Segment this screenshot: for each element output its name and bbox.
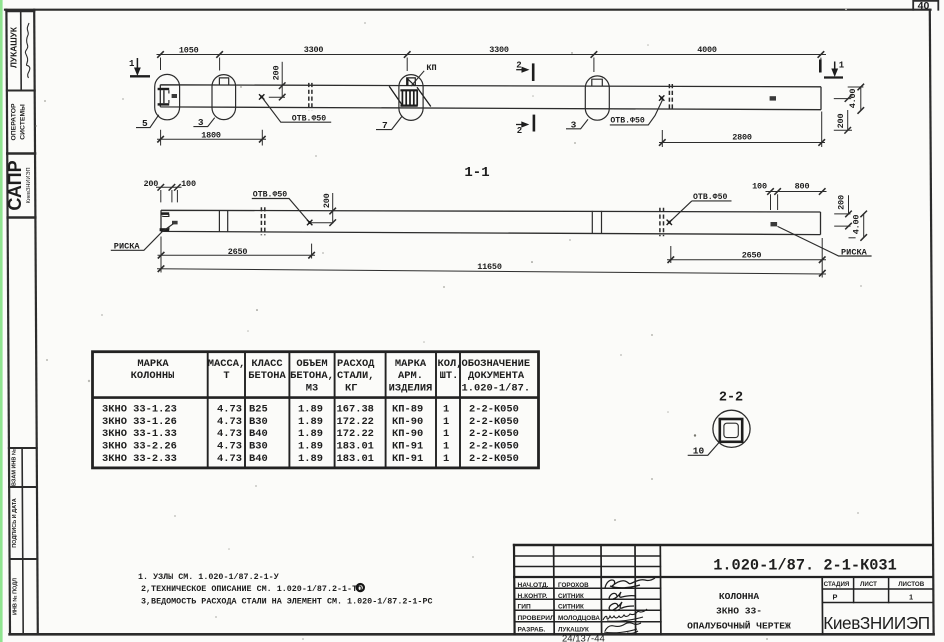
svg-text:КП: КП — [426, 63, 436, 73]
svg-text:СИСТЕМЫ: СИСТЕМЫ — [20, 104, 27, 140]
svg-text:М3: М3 — [306, 383, 318, 395]
svg-text:ГИП: ГИП — [518, 604, 531, 611]
svg-text:2-2-К050: 2-2-К050 — [469, 453, 519, 465]
svg-text:1: 1 — [443, 428, 449, 440]
svg-text:В30: В30 — [249, 441, 268, 453]
svg-text:2-2-К050: 2-2-К050 — [469, 404, 519, 416]
svg-text:1: 1 — [909, 593, 913, 602]
svg-text:1: 1 — [443, 453, 449, 465]
svg-text:РИСКА: РИСКА — [841, 248, 868, 258]
svg-text:2800: 2800 — [732, 133, 752, 143]
svg-text:БЕТОНА,: БЕТОНА, — [290, 370, 334, 382]
svg-text:КОЛ,: КОЛ, — [438, 358, 463, 370]
svg-text:1: 1 — [443, 416, 449, 428]
svg-text:4.73: 4.73 — [217, 404, 242, 416]
svg-text:2-2: 2-2 — [719, 391, 743, 406]
svg-text:В40: В40 — [249, 428, 268, 440]
svg-text:КП-90: КП-90 — [392, 416, 423, 428]
svg-text:3КНО 33-: 3КНО 33- — [716, 606, 762, 617]
svg-text:4000: 4000 — [697, 45, 717, 55]
svg-text:10: 10 — [693, 446, 705, 457]
svg-text:1.020-1/87. 2-1-К031: 1.020-1/87. 2-1-К031 — [713, 557, 897, 575]
svg-text:1050: 1050 — [179, 45, 199, 55]
svg-text:МОЛОДЦОВА: МОЛОДЦОВА — [558, 615, 600, 622]
svg-text:ОБОЗНАЧЕНИЕ: ОБОЗНАЧЕНИЕ — [462, 358, 531, 370]
svg-text:3КНО 33-1.23: 3КНО 33-1.23 — [102, 404, 177, 416]
svg-text:1800: 1800 — [201, 131, 221, 141]
svg-text:1.89: 1.89 — [298, 404, 323, 416]
svg-text:1: 1 — [443, 441, 449, 453]
svg-text:1.89: 1.89 — [298, 416, 323, 428]
svg-text:СТАЛИ,: СТАЛИ, — [337, 370, 374, 382]
svg-text:В40: В40 — [249, 453, 268, 465]
svg-text:НАЧ.ОТД.: НАЧ.ОТД. — [518, 582, 549, 589]
svg-text:2-2-К050: 2-2-К050 — [469, 416, 519, 428]
svg-text:ШТ.: ШТ. — [440, 370, 459, 382]
svg-text:200: 200 — [837, 195, 847, 210]
svg-text:1: 1 — [129, 59, 135, 69]
svg-text:КОЛОННА: КОЛОННА — [719, 591, 760, 602]
svg-text:3300: 3300 — [489, 45, 509, 55]
svg-text:11650: 11650 — [477, 262, 502, 272]
svg-text:1-1: 1-1 — [464, 165, 489, 181]
svg-text:ПОДПИСЬ И ДАТА: ПОДПИСЬ И ДАТА — [12, 498, 18, 548]
svg-text:172.22: 172.22 — [337, 428, 374, 440]
svg-text:ГОРОХОВ: ГОРОХОВ — [558, 582, 589, 589]
svg-text:200: 200 — [836, 114, 846, 129]
svg-text:3300: 3300 — [304, 45, 324, 55]
svg-text:3КНО 33-1.33: 3КНО 33-1.33 — [102, 428, 177, 440]
svg-text:КГ: КГ — [345, 383, 357, 395]
svg-text:ПРОВЕРИЛ: ПРОВЕРИЛ — [518, 615, 555, 622]
svg-text:1: 1 — [443, 404, 449, 416]
svg-text:800: 800 — [795, 181, 810, 191]
svg-text:4.73: 4.73 — [217, 428, 242, 440]
svg-text:183.01: 183.01 — [337, 453, 374, 465]
svg-text:100: 100 — [181, 179, 196, 189]
svg-text:4.73: 4.73 — [217, 441, 242, 453]
svg-text:200: 200 — [272, 66, 282, 81]
svg-text:ЛИСТ: ЛИСТ — [860, 581, 877, 588]
svg-text:КП-89: КП-89 — [392, 404, 423, 416]
svg-text:МАРКА: МАРКА — [395, 358, 427, 370]
svg-text:1. УЗЛЫ СМ. 1.020-1/87.2-1-У: 1. УЗЛЫ СМ. 1.020-1/87.2-1-У — [138, 572, 279, 582]
svg-text:КиевЗНИИЭП: КиевЗНИИЭП — [26, 168, 32, 204]
svg-text:ИНВ № ПОДЛ: ИНВ № ПОДЛ — [12, 578, 18, 615]
svg-text:ОТВ.Ф50: ОТВ.Ф50 — [292, 114, 326, 123]
svg-text:1.89: 1.89 — [298, 453, 323, 465]
svg-text:4.73: 4.73 — [217, 416, 242, 428]
svg-text:ИЗДЕЛИЯ: ИЗДЕЛИЯ — [389, 383, 433, 395]
svg-text:2650: 2650 — [742, 250, 762, 260]
svg-text:1: 1 — [839, 61, 845, 71]
svg-text:3КНО 33-2.26: 3КНО 33-2.26 — [102, 441, 177, 453]
svg-text:ОБЪЕМ: ОБЪЕМ — [296, 358, 327, 370]
svg-text:4.73: 4.73 — [217, 453, 242, 465]
svg-text:ВЗАМ ИНВ №: ВЗАМ ИНВ № — [12, 449, 18, 486]
svg-text:ЛУКАШУК: ЛУКАШУК — [8, 26, 18, 68]
svg-text:1.89: 1.89 — [298, 428, 323, 440]
svg-text:3КНО 33-1.26: 3КНО 33-1.26 — [102, 416, 177, 428]
svg-text:АРМ.: АРМ. — [398, 370, 423, 382]
svg-text:КП-91: КП-91 — [392, 441, 423, 453]
svg-text:3,ВЕДОМОСТЬ РАСХОДА СТАЛИ НА Э: 3,ВЕДОМОСТЬ РАСХОДА СТАЛИ НА ЭЛЕМЕНТ СМ.… — [141, 596, 433, 606]
svg-text:СТАДИЯ: СТАДИЯ — [824, 581, 850, 588]
svg-text:40: 40 — [918, 0, 930, 12]
svg-text:200: 200 — [322, 193, 332, 208]
svg-text:КЛАСС: КЛАСС — [251, 358, 282, 370]
svg-text:РАЗРАБ.: РАЗРАБ. — [518, 627, 546, 634]
svg-text:200: 200 — [143, 179, 158, 189]
svg-text:100: 100 — [752, 181, 767, 191]
svg-text:Т: Т — [223, 370, 229, 382]
svg-text:3КНО 33-2.33: 3КНО 33-2.33 — [102, 453, 177, 465]
svg-text:МАРКА: МАРКА — [137, 358, 169, 370]
svg-text:ДОКУМЕНТА: ДОКУМЕНТА — [468, 370, 525, 382]
svg-text:ОТВ.Ф50: ОТВ.Ф50 — [610, 117, 644, 126]
svg-text:КиевЗНИИЭП: КиевЗНИИЭП — [823, 613, 930, 633]
svg-text:183.01: 183.01 — [337, 441, 374, 453]
svg-text:167.38: 167.38 — [337, 404, 374, 416]
svg-text:ОПАЛУБОЧНЫЙ ЧЕРТЕЖ: ОПАЛУБОЧНЫЙ ЧЕРТЕЖ — [687, 620, 791, 631]
svg-text:Р: Р — [833, 593, 838, 602]
svg-text:РАСХОД: РАСХОД — [337, 358, 375, 370]
svg-text:ЛИСТОВ: ЛИСТОВ — [898, 581, 925, 588]
svg-text:172.22: 172.22 — [337, 416, 374, 428]
svg-text:2-2-К050: 2-2-К050 — [469, 441, 519, 453]
svg-text:2-2-К050: 2-2-К050 — [469, 428, 519, 440]
svg-text:2,ТЕХНИЧЕСКОЕ ОПИСАНИЕ СМ. 1.0: 2,ТЕХНИЧЕСКОЕ ОПИСАНИЕ СМ. 1.020-1/87.2-… — [141, 584, 362, 594]
svg-text:САПР: САПР — [5, 160, 25, 210]
svg-text:24/137-44: 24/137-44 — [562, 634, 605, 642]
svg-text:2: 2 — [516, 61, 521, 71]
svg-text:4.00: 4.00 — [852, 215, 862, 235]
svg-text:2650: 2650 — [228, 247, 248, 257]
svg-text:В30: В30 — [249, 416, 268, 428]
svg-text:1.020-1/87.: 1.020-1/87. — [462, 383, 531, 395]
svg-text:КОЛОННЫ: КОЛОННЫ — [131, 370, 175, 382]
svg-text:В25: В25 — [249, 404, 268, 416]
svg-text:КП-90: КП-90 — [392, 428, 423, 440]
svg-text:БЕТОНА: БЕТОНА — [248, 370, 286, 382]
svg-text:СИТНИК: СИТНИК — [558, 604, 584, 611]
svg-text:ОПЕРАТОР: ОПЕРАТОР — [11, 103, 18, 140]
svg-text:СИТНИК: СИТНИК — [558, 593, 584, 600]
svg-text:МАССА,: МАССА, — [208, 358, 245, 370]
svg-text:1.89: 1.89 — [298, 441, 323, 453]
svg-text:Н.КОНТР.: Н.КОНТР. — [518, 593, 548, 600]
svg-text:КП-91: КП-91 — [392, 453, 423, 465]
